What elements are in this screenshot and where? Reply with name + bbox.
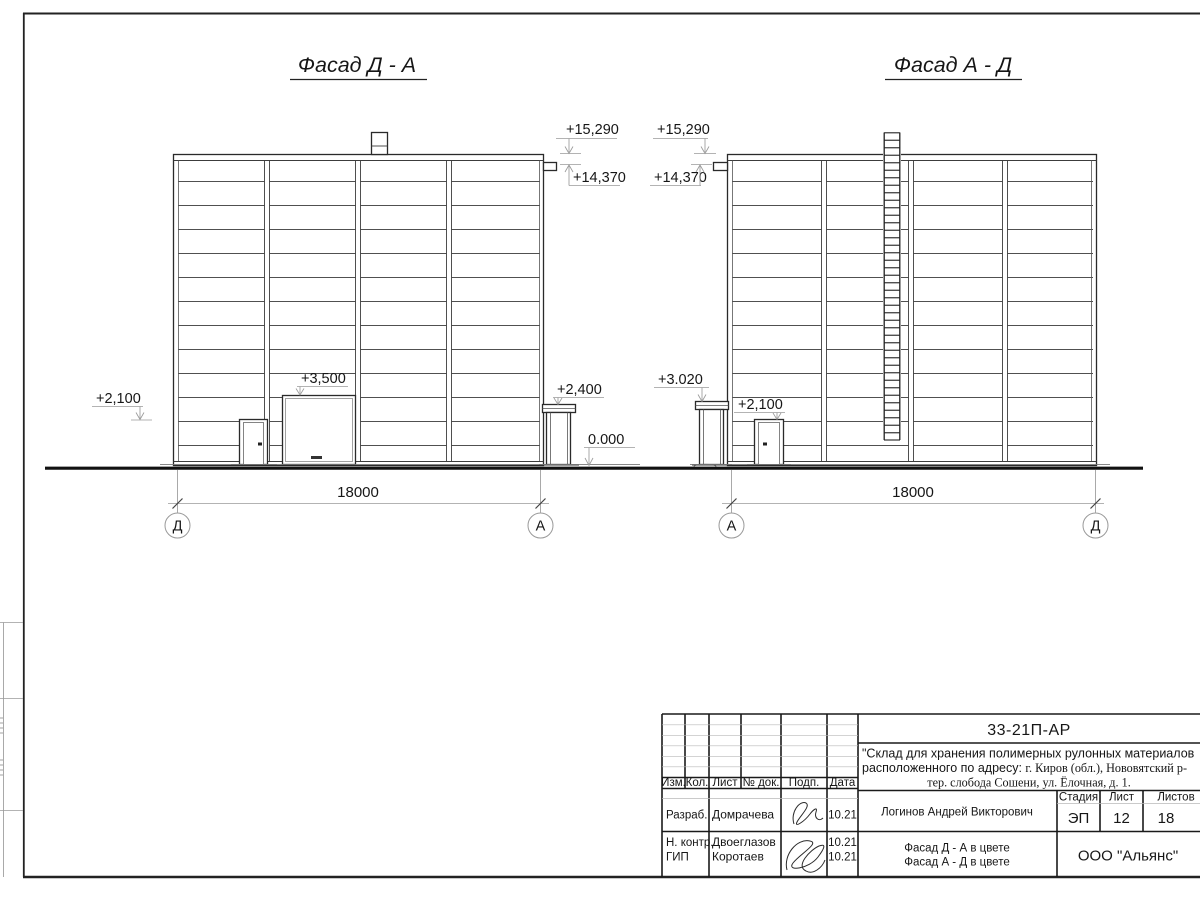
gate (283, 396, 356, 465)
col-header-doc: № док. (743, 777, 780, 789)
elevation-value: +15,290 (657, 122, 710, 138)
company-name: ООО "Альянс" (1078, 848, 1178, 865)
elevation-mark-eave-right: +14,370 (650, 165, 712, 187)
elevation-value: +14,370 (573, 170, 626, 186)
sheet-value: 12 (1113, 810, 1130, 827)
elevation-value: +3,500 (301, 371, 346, 387)
col-header-izm: Изм. (661, 777, 686, 789)
date-nkontr: 10.21 (828, 837, 857, 849)
axis-bubble-label: Д (1091, 519, 1101, 535)
elevation-value: +2,100 (96, 391, 141, 407)
sheet-left-margin (0, 623, 23, 878)
col-header-podp: Подп. (789, 777, 820, 789)
role-razrab: Разраб. (666, 810, 707, 822)
dimension-value: 18000 (337, 484, 379, 501)
sheet-title-line1: Фасад Д - А в цвете (904, 843, 1009, 855)
project-description-line2: расположенного по адресу: г. Киров (обл.… (862, 761, 1187, 775)
eave-outlet (714, 163, 728, 171)
eave-outlet (544, 163, 557, 171)
sheets-header: Листов (1157, 792, 1194, 804)
vestibule-right-facade (692, 402, 732, 469)
door-handle (763, 443, 767, 446)
axis-bubble-label: А (727, 519, 737, 535)
door-handle (258, 443, 262, 446)
col-header-list: Лист (713, 777, 739, 789)
facade-right-title-text: Фасад А - Д (894, 53, 1012, 77)
elevation-mark-eave-left: +14,370 (560, 165, 626, 187)
elevation-mark-parapet-left: +15,290 (556, 122, 619, 154)
name-gip: Коротаев (712, 850, 764, 864)
document-number: 33-21П-АР (987, 722, 1071, 739)
title-block: Изм. Кол. Лист № док. Подп. Дата 33-21П-… (661, 714, 1200, 877)
sheets-value: 18 (1158, 810, 1175, 827)
facade-left-title-text: Фасад Д - А (298, 53, 416, 77)
vestibule-left-facade (539, 405, 579, 465)
facade-right-title: Фасад А - Д (885, 53, 1022, 80)
elevation-mark-ground: 0.000 (584, 432, 635, 466)
stadia-value: ЭП (1068, 810, 1090, 827)
date-gip: 10.21 (828, 852, 857, 864)
project-description-line3: тер. слобода Сошени, ул. Ёлочная, д. 1. (927, 776, 1131, 790)
project-description-line2-serif: г. Киров (обл.), Нововятский р- (1025, 761, 1187, 775)
role-gip: ГИП (666, 852, 689, 864)
elevation-mark-canopy-left: +2,400 (553, 382, 604, 405)
facade-left-building (174, 133, 580, 466)
name-nkontr: Двоеглазов (712, 835, 776, 849)
signature-nkontr-gip (786, 841, 825, 873)
elevation-mark-parapet-right: +15,290 (653, 122, 716, 154)
elevation-mark-canopy-right: +3.020 (654, 372, 709, 402)
date-razrab: 10.21 (828, 810, 857, 822)
elevation-value: +2,400 (557, 382, 602, 398)
signature-razrab (793, 803, 823, 825)
facade-left-title: Фасад Д - А (290, 53, 427, 80)
elevation-mark-door-left: +2,100 (92, 391, 152, 420)
elevation-value: 0.000 (588, 432, 624, 448)
drawing-canvas: Фасад Д - А Фасад А - Д (0, 0, 1200, 900)
role-nkontr: Н. контр. (666, 837, 713, 849)
elevation-value: +3.020 (658, 372, 703, 388)
elevation-value: +14,370 (654, 170, 707, 186)
elevation-value: +2,100 (738, 397, 783, 413)
stadia-header: Стадия (1059, 792, 1098, 804)
name-razrab: Домрачева (712, 808, 774, 822)
col-header-data: Дата (830, 777, 856, 789)
sheet-title-line2: Фасад А - Д в цвете (904, 857, 1009, 869)
roof-vent (372, 133, 388, 155)
facade-right-building (692, 132, 1097, 469)
drawing-sheet: Фасад Д - А Фасад А - Д (0, 0, 1200, 900)
axis-bubble-label: А (536, 519, 546, 535)
roof-ladder (883, 132, 901, 440)
chief-name: Логинов Андрей Викторович (881, 807, 1033, 819)
dimension-right-facade: 18000 А Д (719, 470, 1108, 538)
col-header-kol: Кол. (686, 777, 709, 789)
sheet-header: Лист (1109, 792, 1135, 804)
dimension-value: 18000 (892, 484, 934, 501)
project-description-line2-sans: расположенного по адресу: (862, 761, 1025, 775)
project-description-line1: "Склад для хранения полимерных рулонных … (862, 747, 1195, 761)
dimension-left-facade: 18000 Д А (165, 470, 553, 538)
axis-bubble-label: Д (173, 519, 183, 535)
margin-stamp-marks (0, 718, 3, 775)
elevation-value: +15,290 (566, 122, 619, 138)
